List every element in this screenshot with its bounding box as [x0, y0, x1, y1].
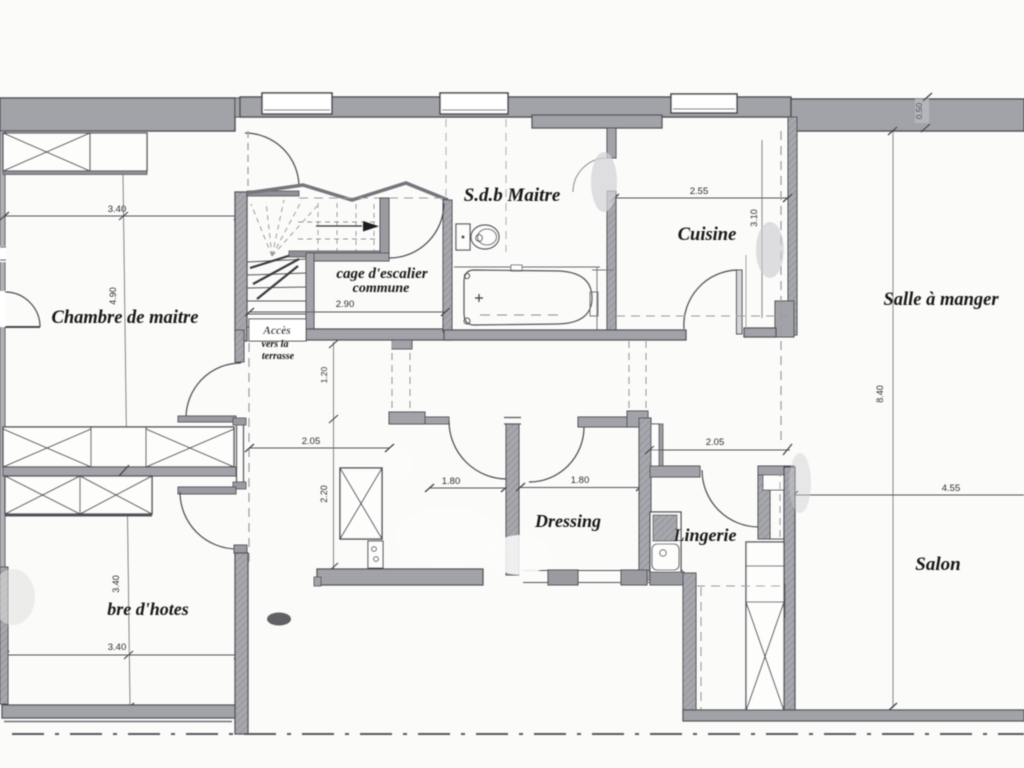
svg-text:bre d'hotes: bre d'hotes: [107, 599, 189, 619]
svg-text:Salle à manger: Salle à manger: [883, 290, 999, 310]
svg-text:1.80: 1.80: [571, 475, 590, 486]
svg-text:2.20: 2.20: [319, 485, 329, 503]
svg-text:1.80: 1.80: [442, 476, 461, 487]
svg-text:8.40: 8.40: [875, 385, 885, 403]
svg-text:2.05: 2.05: [706, 437, 725, 448]
svg-text:4.55: 4.55: [942, 483, 961, 494]
svg-text:terrasse: terrasse: [262, 351, 295, 362]
svg-text:commune: commune: [353, 281, 410, 296]
svg-text:2.90: 2.90: [336, 299, 355, 310]
svg-text:Cuisine: Cuisine: [678, 225, 737, 245]
svg-text:cage d'escalier: cage d'escalier: [336, 266, 427, 282]
svg-text:2.55: 2.55: [690, 186, 709, 197]
svg-text:1.20: 1.20: [319, 366, 329, 383]
svg-text:4.90: 4.90: [108, 287, 118, 305]
svg-text:3.10: 3.10: [749, 209, 759, 227]
svg-text:0.50: 0.50: [914, 102, 924, 119]
svg-text:Salon: Salon: [915, 554, 960, 575]
svg-text:S.d.b Maitre: S.d.b Maitre: [464, 185, 561, 206]
svg-text:Dressing: Dressing: [534, 511, 601, 531]
svg-text:3.40: 3.40: [108, 642, 127, 653]
svg-text:Accès: Accès: [262, 325, 291, 337]
svg-text:vers la: vers la: [262, 339, 289, 350]
svg-text:3.40: 3.40: [111, 575, 121, 593]
svg-text:2.05: 2.05: [302, 436, 321, 447]
svg-text:Lingerie: Lingerie: [673, 525, 737, 545]
